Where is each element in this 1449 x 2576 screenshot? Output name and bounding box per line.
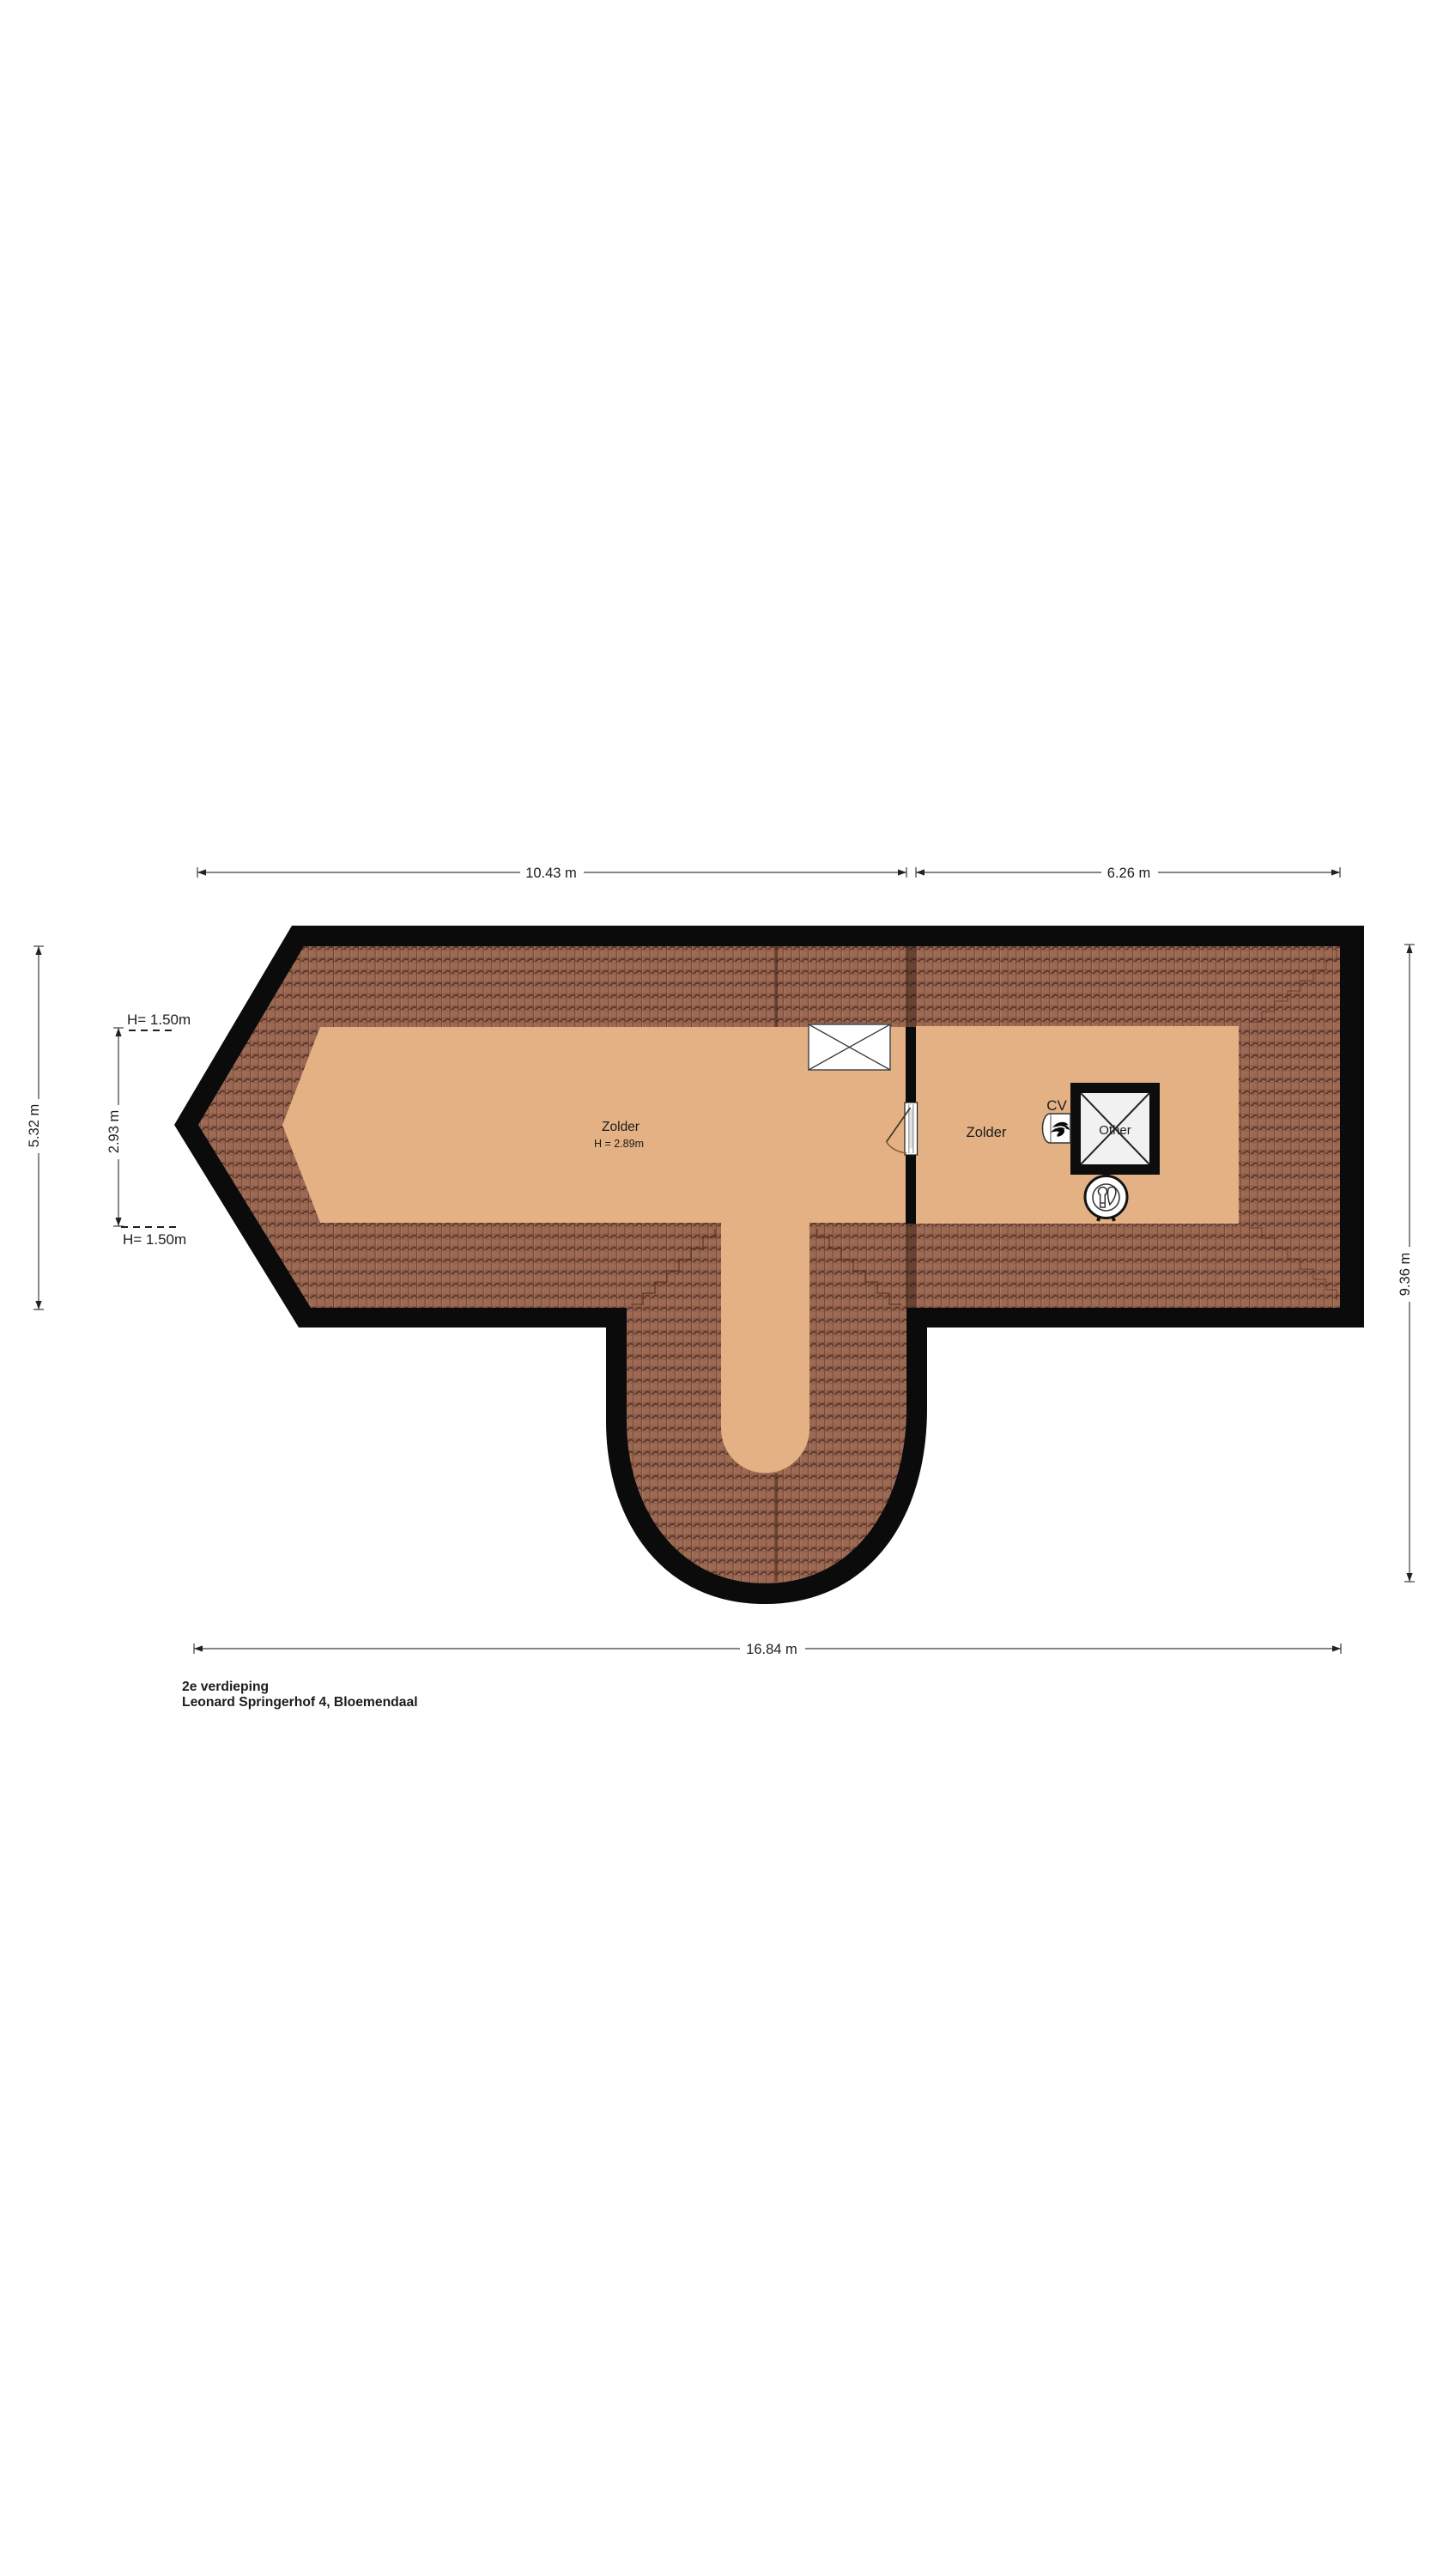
svg-text:CV: CV bbox=[1046, 1097, 1067, 1114]
svg-text:6.26 m: 6.26 m bbox=[1107, 866, 1150, 881]
svg-text:Zolder: Zolder bbox=[967, 1125, 1007, 1140]
svg-text:5.32 m: 5.32 m bbox=[27, 1104, 42, 1147]
svg-text:H = 2.89m: H = 2.89m bbox=[594, 1138, 644, 1150]
svg-text:H= 1.50m: H= 1.50m bbox=[127, 1012, 191, 1028]
svg-text:16.84 m: 16.84 m bbox=[746, 1642, 797, 1657]
svg-text:Other: Other bbox=[1099, 1123, 1131, 1138]
svg-text:9.36 m: 9.36 m bbox=[1397, 1253, 1413, 1296]
svg-text:H= 1.50m: H= 1.50m bbox=[123, 1231, 186, 1248]
svg-text:2.93 m: 2.93 m bbox=[106, 1110, 122, 1153]
svg-text:Zolder: Zolder bbox=[602, 1120, 640, 1134]
svg-text:2e verdieping: 2e verdieping bbox=[182, 1680, 269, 1694]
svg-text:Leonard Springerhof 4, Bloemen: Leonard Springerhof 4, Bloemendaal bbox=[182, 1695, 418, 1710]
svg-text:10.43 m: 10.43 m bbox=[525, 866, 577, 881]
